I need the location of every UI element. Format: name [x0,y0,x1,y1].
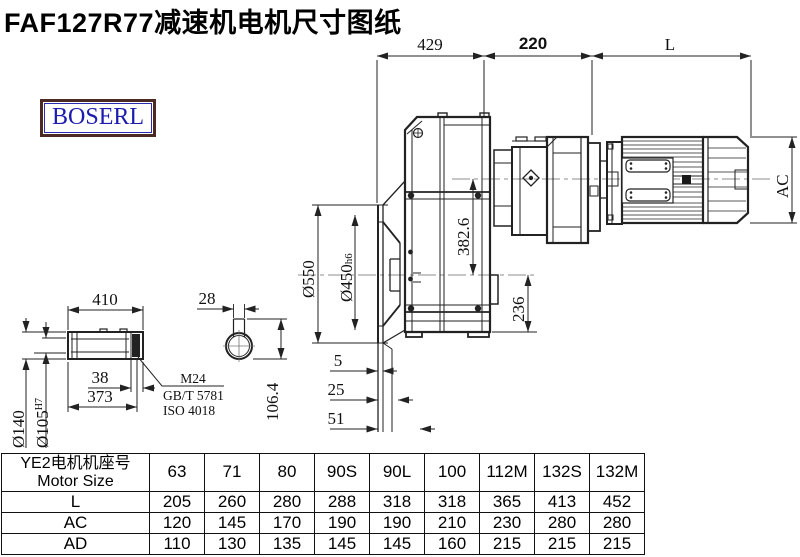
table-cell: 145 [315,534,370,555]
table-header-motor-size: YE2电机机座号 Motor Size [2,454,150,492]
table-cell: 280 [260,492,315,513]
dim-5: 5 [334,351,343,370]
dim-106: 106.4 [263,382,282,421]
table-col-90s: 90S [315,454,370,492]
dim-382: 382.6 [454,218,473,256]
dim-d140: Ø140 [9,410,28,448]
table-cell: 452 [590,492,645,513]
dim-410: 410 [92,290,118,309]
table-header-en: Motor Size [2,473,149,491]
table-cell: 110 [150,534,205,555]
dim-51: 51 [328,409,345,428]
table-cell: 145 [205,513,260,534]
table-col-71: 71 [205,454,260,492]
gearbox-housing [405,113,498,337]
fan-cowl [703,137,748,223]
table-col-63: 63 [150,454,205,492]
table-header-row: YE2电机机座号 Motor Size 63 71 80 90S 90L 100… [2,454,645,492]
dimension-top-chain: 429 220 L [377,34,751,203]
table-cell: 413 [535,492,590,513]
table-cell: 210 [425,513,480,534]
dim-d450: Ø450h6 [337,253,356,302]
row-label-L: L [2,492,150,513]
table-row: AC 120 145 170 190 190 210 230 280 280 [2,513,645,534]
note-standard-gbt: GB/T 5781 [163,388,224,403]
table-cell: 190 [315,513,370,534]
table-row: L 205 260 280 288 318 318 365 413 452 [2,492,645,513]
dimension-flange-diameters: Ø550 Ø450h6 [299,205,356,343]
table-cell: 135 [260,534,315,555]
dim-d105: Ø105H7 [33,398,52,448]
dim-373: 373 [87,387,113,406]
table-cell: 365 [480,492,535,513]
r77-gear-stage [494,137,607,243]
table-cell: 288 [315,492,370,513]
dim-220: 220 [519,34,547,53]
centerlines [298,179,772,275]
note-standard-iso: ISO 4018 [163,403,215,418]
table-cell: 145 [370,534,425,555]
table-cell: 130 [205,534,260,555]
table-col-80: 80 [260,454,315,492]
dim-429: 429 [417,35,443,54]
dimension-ac: AC [750,137,797,223]
dim-28: 28 [199,289,216,308]
table-cell: 215 [535,534,590,555]
table-cell: 230 [480,513,535,534]
dim-d550: Ø550 [299,260,318,298]
table-col-90l: 90L [370,454,425,492]
dimension-flange-offsets: 5 25 51 [328,351,436,429]
table-cell: 318 [370,492,425,513]
table-col-132s: 132S [535,454,590,492]
note-thread: M24 [180,371,206,386]
table-col-112m: 112M [480,454,535,492]
dim-236: 236 [509,297,528,323]
table-cell: 190 [370,513,425,534]
spec-table: YE2电机机座号 Motor Size 63 71 80 90S 90L 100… [1,453,645,555]
dim-25: 25 [328,380,345,399]
table-cell: 160 [425,534,480,555]
table-cell: 215 [590,534,645,555]
table-cell: 318 [425,492,480,513]
table-col-100: 100 [425,454,480,492]
dimension-center-heights: 382.6 236 [454,179,537,332]
motor-terminal-mark [682,175,691,184]
table-header-cn: YE2电机机座号 [2,455,149,473]
motor-frame-panel [622,158,673,203]
flange-side-view [312,181,405,432]
table-col-132m: 132M [590,454,645,492]
table-cell: 280 [535,513,590,534]
dim-38: 38 [92,368,109,387]
shaft-sleeve-detail: 410 Ø140 Ø105H7 38 373 M24 GB/T 5781 ISO… [9,290,224,448]
row-label-AC: AC [2,513,150,534]
table-cell: 215 [480,534,535,555]
dim-L: L [665,35,675,54]
dimension-drawing: 429 220 L Ø550 Ø450h6 [0,0,800,452]
table-row: AD 110 130 135 145 145 160 215 215 215 [2,534,645,555]
table-cell: 280 [590,513,645,534]
motor [607,137,748,224]
table-cell: 120 [150,513,205,534]
table-cell: 260 [205,492,260,513]
row-label-AD: AD [2,534,150,555]
dim-ac: AC [773,174,792,198]
table-cell: 170 [260,513,315,534]
table-cell: 205 [150,492,205,513]
